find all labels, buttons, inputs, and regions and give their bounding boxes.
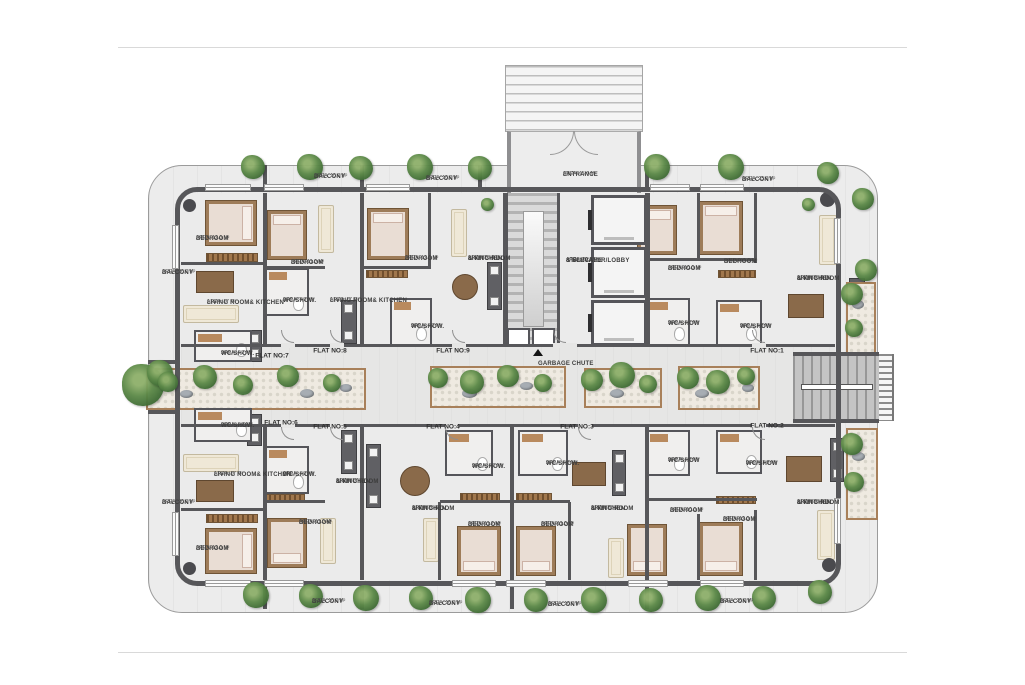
room-area: AREA: 20.0 M² — [720, 599, 753, 605]
tree-icon — [241, 155, 265, 179]
flat-4-label: FLAT NO:4 — [426, 424, 459, 431]
sheet-border-bottom — [118, 652, 907, 653]
stair-hatch — [879, 354, 894, 421]
room-area: AREA: 12.0 M² — [196, 236, 229, 242]
room-area: AREA: 10.0 M² — [312, 599, 345, 605]
flat-9-label: FLAT NO:9 — [436, 348, 469, 355]
room-area: AREA: 30.0 M² — [797, 276, 830, 282]
tree-icon — [581, 587, 607, 613]
tree-icon — [718, 154, 744, 180]
tree-icon — [841, 433, 863, 455]
tree-icon — [639, 375, 657, 393]
window — [264, 184, 304, 191]
tree-icon — [845, 319, 863, 337]
room-area: AREA: 4.3 M² — [283, 472, 314, 478]
room-area: AREA: 17 M² — [336, 479, 365, 485]
room-area: AREA: 12.0 M² — [723, 517, 756, 523]
tree-icon — [534, 374, 552, 392]
wall — [440, 500, 510, 503]
wall — [503, 193, 508, 346]
window — [264, 580, 304, 587]
wall — [438, 502, 441, 580]
flat-8-label: FLAT NO:8 — [313, 348, 346, 355]
wall — [148, 410, 176, 414]
room-area: AREA: 30.0 M² — [797, 500, 830, 506]
tree-icon — [465, 587, 491, 613]
window — [452, 580, 496, 587]
window — [366, 184, 410, 191]
wall — [181, 344, 835, 347]
wall — [568, 502, 571, 580]
flat-5-label: FLAT NO:5 — [313, 424, 346, 431]
flat-2-label: FLAT NO:2 — [750, 423, 783, 430]
room-area: AREA: 4.3 M² — [221, 423, 252, 429]
room-area: AREA: 20.0 M² — [162, 500, 195, 506]
tree-icon — [841, 283, 863, 305]
room-area: AREA: 17 M² — [330, 298, 359, 304]
window — [172, 225, 179, 269]
room-area: AREA: 11.0 M² — [291, 260, 324, 266]
triangle-up-icon — [533, 349, 543, 356]
tree-icon — [695, 585, 721, 611]
room-area: AREA: 3.5 M² — [746, 461, 777, 467]
flat-7-label: FLAT NO:7 — [255, 353, 288, 360]
room-area: AREA: 4.1 M² — [472, 464, 503, 470]
room-area: AREA: 4.3 M² — [283, 298, 314, 304]
wall — [265, 500, 325, 503]
wall — [754, 193, 757, 263]
room-area: AREA: 15.0 M² — [563, 172, 596, 178]
room-area: AREA: 17 M² — [214, 472, 243, 478]
window — [205, 184, 251, 191]
window — [506, 580, 546, 587]
tree-icon — [752, 586, 776, 610]
wall — [360, 426, 364, 580]
room-area: AREA: 29.7 M² — [566, 258, 599, 264]
wall — [263, 193, 267, 346]
tree-icon — [233, 375, 253, 395]
window — [650, 184, 690, 191]
tree-icon — [193, 365, 217, 389]
floor-plan-sheet: BALCONYAREA: 10.0 M²BALCONYAREA: 10.0 M²… — [0, 0, 1025, 685]
tree-icon — [852, 188, 874, 210]
wall — [645, 193, 650, 346]
door-opening — [281, 343, 295, 348]
tree-icon — [428, 368, 448, 388]
room-area: AREA: 10.0 M² — [668, 266, 701, 272]
wall — [263, 426, 267, 580]
tree-icon — [808, 580, 832, 604]
room-area: AREA: 3.5 M² — [740, 324, 771, 330]
entrance-canopy — [505, 65, 643, 132]
wall — [645, 498, 757, 501]
tree-icon — [817, 162, 839, 184]
tree-icon — [855, 259, 877, 281]
room-area: AREA: 4.0 M² — [668, 458, 699, 464]
tree-icon — [277, 365, 299, 387]
tree-icon — [353, 585, 379, 611]
tree-icon — [460, 370, 484, 394]
room-area: AREA: 10.0 M² — [429, 601, 462, 607]
tree-icon — [497, 365, 519, 387]
room-name: GARBAGE CHUTE — [538, 361, 594, 368]
tree-icon — [639, 588, 663, 612]
wall — [697, 514, 700, 580]
wall — [514, 500, 570, 503]
room-area: AREA: 12.0 M² — [196, 546, 229, 552]
tree-icon — [677, 367, 699, 389]
wall — [510, 426, 514, 580]
tree-icon — [581, 369, 603, 391]
room-area: AREA: 10.0 M² — [548, 602, 581, 608]
tree-icon — [609, 362, 635, 388]
tree-icon — [158, 372, 178, 392]
room-area: AREA: 20.0 M² — [468, 256, 501, 262]
room-area: AREA: 12.0 M² — [724, 259, 757, 265]
door-opening — [553, 343, 577, 348]
room-area: AREA: 12.0 M² — [405, 256, 438, 262]
room-area: AREA: 10.0 M² — [314, 174, 347, 180]
tree-icon — [468, 156, 492, 180]
flat-3-label: FLAT NO:3 — [560, 424, 593, 431]
room-area: AREA: 22 M² — [591, 506, 620, 512]
room-area: AREA: 25 M² — [412, 506, 441, 512]
tree-icon — [524, 588, 548, 612]
room-area: AREA: 20.0 M² — [162, 270, 195, 276]
tree-icon — [802, 198, 815, 211]
window — [172, 512, 179, 556]
wall — [181, 508, 263, 511]
sheet-border-top — [118, 47, 907, 48]
wall — [181, 262, 263, 265]
room-area: AREA: 23.0 M² — [742, 177, 775, 183]
room-area: AREA: 11.0 M² — [541, 522, 574, 528]
tree-icon — [644, 154, 670, 180]
window — [700, 184, 744, 191]
entrance-vestibule — [507, 131, 641, 193]
tree-icon — [706, 370, 730, 394]
room-area: AREA: 4.1 M² — [668, 321, 699, 327]
window — [834, 218, 841, 264]
room-area: AREA: 4.3 M² — [221, 351, 252, 357]
room-area: AREA: 17 M² — [207, 300, 236, 306]
wall — [697, 193, 700, 261]
window — [628, 580, 668, 587]
tree-icon — [737, 367, 755, 385]
tree-icon — [323, 374, 341, 392]
wall — [645, 426, 649, 580]
room-area: AREA: 10.0 M² — [426, 176, 459, 182]
room-area: AREA: 4.0 M² — [546, 461, 577, 467]
tree-icon — [481, 198, 494, 211]
flat-1-label: FLAT NO:1 — [750, 348, 783, 355]
room-area: AREA: 11.0 M² — [299, 520, 332, 526]
room-area: AREA: 11.2 M² — [468, 522, 501, 528]
tree-icon — [349, 156, 373, 180]
tree-icon — [243, 582, 269, 608]
wall — [360, 193, 364, 346]
wall — [362, 266, 430, 269]
room-area: AREA: 10.0 M² — [670, 508, 703, 514]
flat-6-label: FLAT NO:6 — [264, 420, 297, 427]
room-area: AREA: 4.3 M² — [411, 324, 442, 330]
tree-icon — [844, 472, 864, 492]
